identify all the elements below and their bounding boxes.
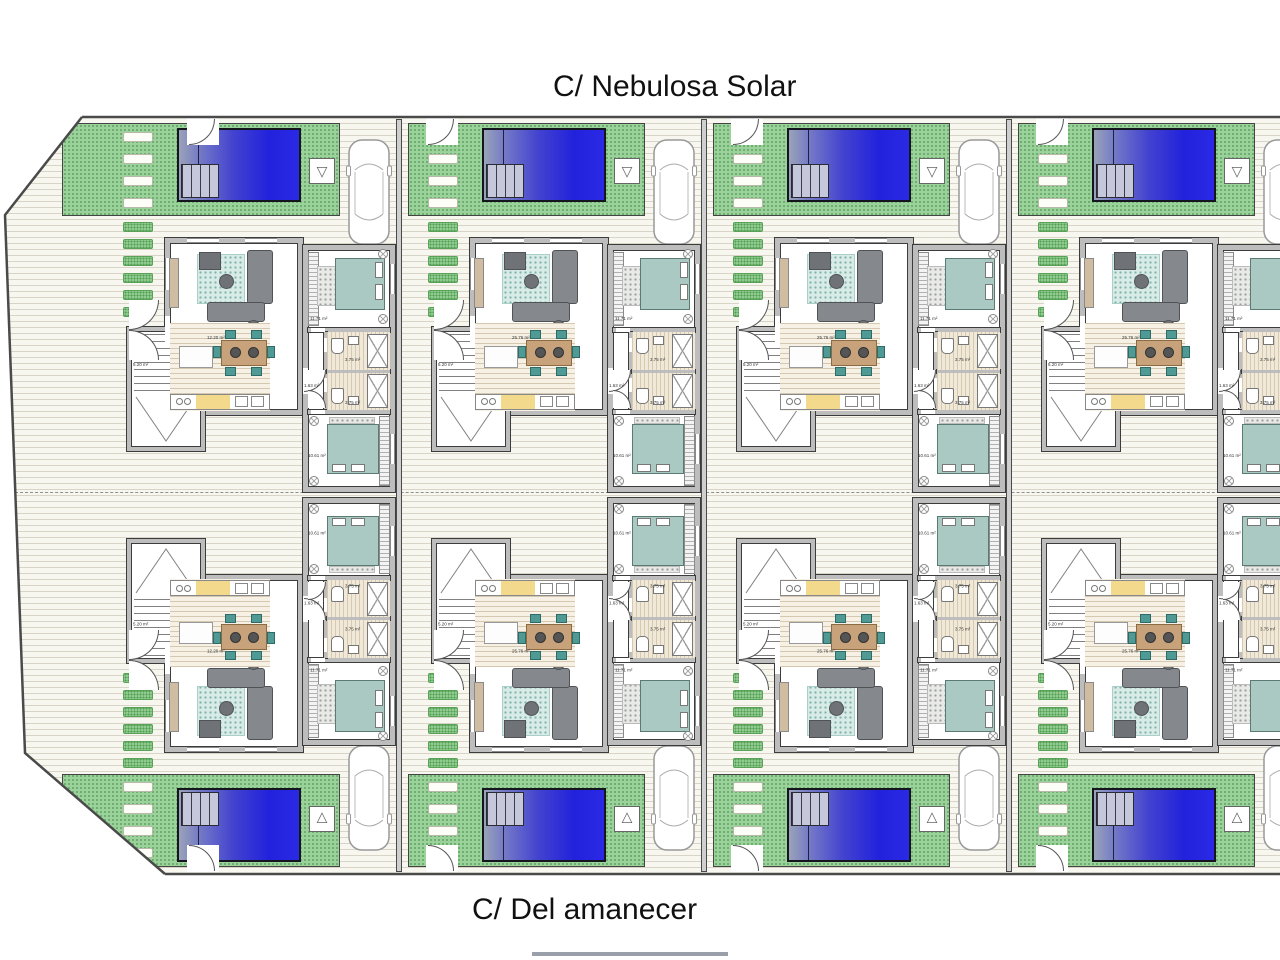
kitchen-counter: [475, 394, 575, 410]
window: [695, 526, 700, 556]
stepping-stone: [123, 176, 153, 186]
side-table: [829, 274, 844, 289]
bedroom-door-opening: [1226, 658, 1240, 662]
stepping-stone: [428, 222, 458, 232]
dining-chair: [1182, 346, 1190, 358]
window: [165, 700, 170, 732]
pool-steps: [1096, 792, 1134, 826]
armchair: [199, 252, 221, 270]
double-bed: [1250, 258, 1280, 310]
stepping-stone: [733, 690, 763, 700]
stepping-stone: [123, 256, 153, 266]
armchair: [504, 252, 526, 270]
kitchen-island: [484, 346, 518, 368]
shower-stall: [367, 374, 388, 408]
pillow: [351, 464, 365, 472]
villa-4-south: ▽: [1010, 495, 1280, 872]
side-table: [524, 274, 539, 289]
porch-door-arc-icon: [739, 660, 769, 690]
toilet: [941, 338, 954, 354]
window: [1000, 696, 1005, 726]
villa-1-north: ▽: [95, 118, 400, 495]
garden-gate: [1036, 118, 1068, 145]
shower-stall: [977, 374, 998, 408]
tv-cabinet: [474, 682, 484, 732]
shower-stall: [672, 582, 693, 616]
kitchen-range: [196, 395, 230, 409]
porch-door-arc-icon: [129, 660, 159, 690]
room-label-bedroom: 10.61 m²: [308, 454, 326, 459]
dining-chair: [572, 346, 580, 358]
table-setting: [553, 632, 564, 643]
bedroom-door-opening: [921, 410, 935, 414]
kitchen-sink: [184, 398, 191, 405]
kitchen-appliance: [1166, 396, 1179, 407]
bathroom-sink: [348, 645, 359, 654]
tv-cabinet: [474, 258, 484, 308]
ceiling-vent-icon: [988, 666, 998, 676]
kitchen-sink: [1091, 585, 1098, 592]
kitchen-counter: [780, 394, 880, 410]
kitchen-island: [179, 622, 213, 644]
sofa: [552, 686, 578, 740]
dining-chair: [225, 330, 236, 339]
shower-stall: [367, 582, 388, 616]
stepping-stone: [428, 290, 458, 300]
garden-gate: [731, 118, 763, 145]
room-label-bedroom: 10.61 m²: [613, 454, 631, 459]
window: [390, 526, 395, 556]
room-label-bedroom: 11.71 m²: [1225, 317, 1242, 322]
kitchen-sink: [786, 398, 793, 405]
kitchen-counter: [780, 580, 880, 596]
armchair: [504, 720, 526, 738]
table-setting: [553, 347, 564, 358]
kitchen-sink: [184, 585, 191, 592]
pillow: [1266, 518, 1280, 526]
room-label-hallway: 1.63 m²: [1219, 602, 1234, 607]
stepping-stone: [1038, 804, 1068, 814]
outdoor-shower-icon: ▽: [614, 806, 640, 832]
pillow: [961, 464, 975, 472]
room-label-hallway: 1.63 m²: [1219, 384, 1234, 389]
toilet: [636, 388, 649, 404]
porch-door-arc-icon: [1044, 660, 1074, 690]
room-label-bathroom: 3.75 m²: [1260, 585, 1275, 590]
ceiling-vent-icon: [988, 249, 998, 259]
villa-3-south: ▽: [705, 495, 1010, 872]
dining-chair: [1166, 614, 1177, 623]
stepping-stone: [733, 741, 763, 751]
pool-lane-line: [1113, 820, 1114, 860]
dining-chair: [556, 367, 567, 376]
table-setting: [858, 347, 869, 358]
window: [1160, 238, 1192, 243]
villa-2-south: ▽: [400, 495, 705, 872]
entry-door-opening: [165, 648, 170, 674]
stepping-stone: [733, 273, 763, 283]
pool-lane-line: [503, 820, 504, 860]
window: [165, 258, 170, 290]
closet: [989, 416, 1000, 486]
pillow: [637, 464, 651, 472]
pool-steps: [791, 792, 829, 826]
dining-chair: [1166, 651, 1177, 660]
kitchen-counter: [170, 394, 270, 410]
bath-door-opening: [629, 378, 632, 392]
kitchen-appliance: [556, 583, 569, 594]
car-icon: [346, 138, 392, 246]
swimming-pool: [482, 788, 606, 862]
dining-chair: [1140, 614, 1151, 623]
window: [187, 747, 219, 752]
dining-table: [831, 340, 877, 366]
garden-gate: [1036, 845, 1068, 872]
bathroom-sink: [958, 645, 969, 654]
window: [492, 747, 524, 752]
entry-door-opening: [775, 316, 780, 342]
kitchen-counter: [475, 580, 575, 596]
kitchen-sink: [1091, 398, 1098, 405]
sofa: [247, 686, 273, 740]
pillow: [680, 690, 688, 706]
dining-table: [831, 624, 877, 650]
toilet: [1246, 388, 1259, 404]
room-label-porch: 5.20 m²: [133, 623, 148, 628]
sofa: [247, 250, 273, 304]
room-label-bedroom: 11.71 m²: [615, 669, 632, 674]
stepping-stone: [428, 707, 458, 717]
kitchen-appliance: [251, 583, 264, 594]
bath-door-opening: [1239, 638, 1242, 652]
scale-bar: [532, 952, 728, 956]
room-label-porch: 5.20 m²: [743, 363, 758, 368]
kitchen-counter: [1085, 580, 1185, 596]
ceiling-vent-icon: [309, 416, 319, 426]
room-label-bathroom: 3.75 m²: [650, 628, 665, 633]
outdoor-shower-icon: ▽: [919, 806, 945, 832]
pillow: [680, 284, 688, 300]
bath-door-opening: [324, 598, 327, 612]
bedroom-door-opening: [311, 410, 325, 414]
pillow: [1247, 464, 1261, 472]
tv-cabinet: [779, 682, 789, 732]
stepping-stone: [733, 256, 763, 266]
dining-chair: [530, 367, 541, 376]
shower-stall: [672, 622, 693, 656]
kitchen-range: [196, 581, 230, 595]
window: [1080, 258, 1085, 290]
kitchen-sink: [489, 585, 496, 592]
window: [1160, 747, 1192, 752]
side-table: [1134, 701, 1149, 716]
room-label-hallway: 1.63 m²: [609, 384, 624, 389]
gate-door-arc-icon: [428, 845, 454, 871]
bath-door-opening: [324, 338, 327, 352]
kitchen-appliance: [235, 396, 248, 407]
window: [1000, 526, 1005, 556]
shower-stall: [977, 334, 998, 368]
bedroom-door-opening: [921, 658, 935, 662]
bedroom-door-opening: [311, 658, 325, 662]
dining-chair: [225, 651, 236, 660]
side-table: [829, 701, 844, 716]
room-label-bathroom: 3.75 m²: [650, 401, 665, 406]
pillow: [985, 712, 993, 728]
sofa: [207, 668, 265, 688]
room-label-porch: 5.20 m²: [1048, 363, 1063, 368]
room-label-porch: 5.20 m²: [743, 623, 758, 628]
tv-cabinet: [169, 682, 179, 732]
window: [775, 700, 780, 732]
gate-door-arc-icon: [189, 845, 215, 871]
bath-door-opening: [1239, 378, 1242, 392]
bath-door-opening: [934, 638, 937, 652]
stepping-stone: [123, 154, 153, 164]
room-label-hallway: 1.63 m²: [304, 602, 319, 607]
stepping-stone: [1038, 176, 1068, 186]
ceiling-vent-icon: [378, 249, 388, 259]
dining-chair: [556, 614, 567, 623]
bedroom-rug: [1244, 417, 1280, 424]
stepping-stone: [123, 222, 153, 232]
kitchen-sink: [489, 398, 496, 405]
room-label-bathroom: 3.75 m²: [650, 585, 665, 590]
porch-door-arc-icon: [434, 300, 464, 330]
stepping-stone: [428, 724, 458, 734]
dining-chair: [1182, 632, 1190, 644]
armchair: [809, 720, 831, 738]
dining-chair: [1166, 367, 1177, 376]
stepping-stone: [428, 804, 458, 814]
ceiling-vent-icon: [683, 731, 693, 741]
stepping-stone: [123, 782, 153, 792]
dining-table: [1136, 624, 1182, 650]
ceiling-vent-icon: [683, 666, 693, 676]
kitchen-appliance: [861, 396, 874, 407]
dining-chair: [251, 614, 262, 623]
stepping-stone: [123, 273, 153, 283]
room-label-porch: 5.20 m²: [133, 363, 148, 368]
garden-gate: [426, 118, 458, 145]
car-icon: [346, 744, 392, 852]
outdoor-shower-icon: ▽: [309, 158, 335, 184]
dining-chair: [1128, 632, 1136, 644]
ceiling-vent-icon: [1224, 504, 1234, 514]
kitchen-island: [789, 622, 823, 644]
stepping-stone: [733, 239, 763, 249]
toilet: [636, 338, 649, 354]
stepping-stone: [1038, 782, 1068, 792]
bedroom-rug: [939, 566, 985, 573]
stepping-stone: [733, 724, 763, 734]
dining-chair: [835, 651, 846, 660]
ceiling-vent-icon: [614, 564, 624, 574]
ceiling-vent-icon: [1224, 476, 1234, 486]
pillow: [680, 262, 688, 278]
bedroom-door-opening: [616, 576, 630, 580]
pillow: [985, 690, 993, 706]
sofa: [1122, 668, 1180, 688]
window: [245, 238, 277, 243]
swimming-pool: [1092, 128, 1216, 202]
stepping-stone: [1038, 758, 1068, 768]
dining-table: [1136, 340, 1182, 366]
table-setting: [230, 632, 241, 643]
bathroom-sink: [653, 645, 664, 654]
kitchen-sink: [786, 585, 793, 592]
dining-chair: [556, 651, 567, 660]
window: [855, 747, 887, 752]
swimming-pool: [482, 128, 606, 202]
toilet: [1246, 338, 1259, 354]
room-label-bedroom: 10.61 m²: [613, 532, 631, 537]
bath-door-opening: [629, 638, 632, 652]
kitchen-appliance: [540, 396, 553, 407]
stepping-stone: [1038, 239, 1068, 249]
window: [695, 434, 700, 464]
window: [855, 238, 887, 243]
entry-door-opening: [165, 316, 170, 342]
pillow: [332, 518, 346, 526]
stepping-stone: [123, 198, 153, 208]
side-table: [219, 274, 234, 289]
entry-door-opening: [1080, 648, 1085, 674]
window: [390, 264, 395, 294]
kitchen-appliance: [251, 396, 264, 407]
stepping-stone: [733, 198, 763, 208]
window: [550, 238, 582, 243]
room-label-bedroom: 11.71 m²: [615, 317, 632, 322]
bedroom-door-opening: [616, 410, 630, 414]
sofa: [512, 668, 570, 688]
kitchen-sink: [794, 398, 801, 405]
stepping-stone: [733, 290, 763, 300]
pillow: [375, 690, 383, 706]
table-setting: [1145, 347, 1156, 358]
pillow: [942, 464, 956, 472]
window: [1102, 747, 1134, 752]
bath-door-opening: [629, 598, 632, 612]
stepping-stone: [1038, 290, 1068, 300]
kitchen-appliance: [235, 583, 248, 594]
window: [1102, 238, 1134, 243]
dining-chair: [267, 632, 275, 644]
toilet: [636, 586, 649, 602]
stepping-stone: [428, 273, 458, 283]
outdoor-shower-icon: ▽: [1224, 806, 1250, 832]
pillow: [1247, 518, 1261, 526]
stepping-stone: [1038, 741, 1068, 751]
bedroom-rug: [939, 417, 985, 424]
gate-door-arc-icon: [189, 119, 215, 145]
stepping-stone: [1038, 154, 1068, 164]
porch-door-arc-icon: [129, 300, 159, 330]
swimming-pool: [787, 128, 911, 202]
room-label-bathroom: 3.75 m²: [345, 358, 360, 363]
room-label-living: 25.76 m²: [817, 336, 835, 341]
street-label-south: C/ Del amanecer: [472, 893, 697, 927]
window: [390, 696, 395, 726]
dining-chair: [823, 346, 831, 358]
bedroom-door-opening: [311, 328, 325, 332]
pool-steps: [791, 164, 829, 198]
room-label-bathroom: 3.75 m²: [955, 401, 970, 406]
window: [550, 747, 582, 752]
bathroom-sink: [653, 336, 664, 345]
dining-chair: [530, 330, 541, 339]
sofa: [1162, 686, 1188, 740]
dining-chair: [518, 346, 526, 358]
garden-gate: [187, 845, 219, 872]
ceiling-vent-icon: [919, 564, 929, 574]
dining-chair: [556, 330, 567, 339]
bedroom-door-opening: [616, 328, 630, 332]
bath-door-opening: [934, 338, 937, 352]
dining-chair: [251, 367, 262, 376]
garden-gate: [426, 845, 458, 872]
villa-2-north: ▽: [400, 118, 705, 495]
room-label-hallway: 1.63 m²: [914, 602, 929, 607]
room-label-bathroom: 3.75 m²: [955, 628, 970, 633]
entry-door-opening: [470, 316, 475, 342]
room-label-living: 25.76 m²: [1122, 650, 1140, 655]
porch-door-arc-icon: [1044, 300, 1074, 330]
garden-gate: [731, 845, 763, 872]
stepping-stone: [123, 804, 153, 814]
stepping-stone: [1038, 222, 1068, 232]
swimming-pool: [1092, 788, 1216, 862]
car-icon: [651, 138, 697, 246]
stepping-stone: [1038, 273, 1068, 283]
gate-door-arc-icon: [733, 119, 759, 145]
ceiling-vent-icon: [614, 504, 624, 514]
kitchen-sink: [1099, 585, 1106, 592]
kitchen-counter: [170, 580, 270, 596]
room-label-porch: 5.20 m²: [438, 623, 453, 628]
porch-door-arc-icon: [434, 660, 464, 690]
side-table: [1134, 274, 1149, 289]
gate-door-arc-icon: [428, 119, 454, 145]
car-icon: [651, 744, 697, 852]
table-setting: [248, 347, 259, 358]
table-setting: [535, 347, 546, 358]
kitchen-appliance: [1166, 583, 1179, 594]
bath-door-opening: [934, 378, 937, 392]
kitchen-appliance: [540, 583, 553, 594]
stepping-stone: [733, 154, 763, 164]
dining-chair: [1166, 330, 1177, 339]
window: [797, 747, 829, 752]
pool-steps: [181, 792, 219, 826]
kitchen-range: [806, 395, 840, 409]
room-label-bedroom: 11.71 m²: [310, 669, 327, 674]
pillow: [656, 518, 670, 526]
villa-1-south: ▽: [95, 495, 400, 872]
window: [1080, 700, 1085, 732]
stepping-stone: [1038, 198, 1068, 208]
kitchen-sink: [794, 585, 801, 592]
car-icon: [956, 744, 1002, 852]
toilet: [941, 636, 954, 652]
bath-door-opening: [1239, 338, 1242, 352]
kitchen-range: [1111, 395, 1145, 409]
dining-chair: [861, 651, 872, 660]
ceiling-vent-icon: [683, 314, 693, 324]
pillow: [351, 518, 365, 526]
dining-chair: [530, 651, 541, 660]
ceiling-vent-icon: [378, 314, 388, 324]
